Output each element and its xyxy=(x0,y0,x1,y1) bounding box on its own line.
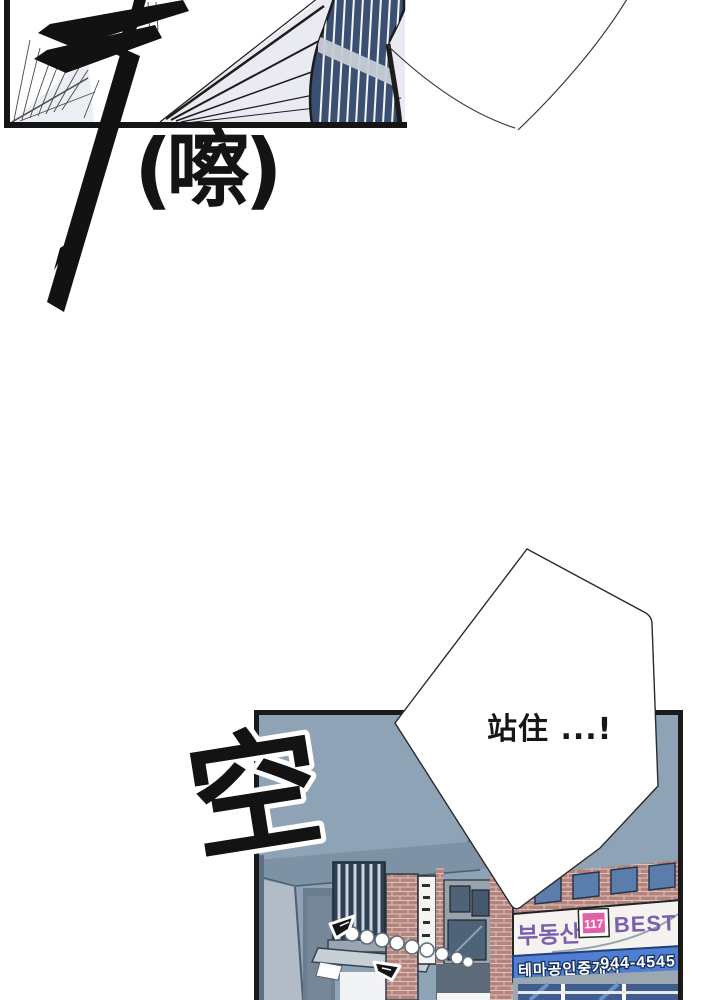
sign-realty-text: 부동산 xyxy=(517,921,581,949)
top-panel xyxy=(4,0,630,312)
agency-phone-text: 944-4545 xyxy=(600,953,676,973)
speech-bubble-text: 站住 ...! xyxy=(487,704,612,748)
sfx-caption: (嚓) xyxy=(134,124,277,216)
bottom-panel: 부동산 117 BEST 테마공인중개사 944-4545 xyxy=(178,549,683,1000)
comic-page: 부동산 117 BEST 테마공인중개사 944-4545 xyxy=(0,0,720,1000)
sign-badge-number: 117 xyxy=(584,917,604,932)
kong-sfx-text: 空 xyxy=(178,709,332,882)
top-speech-bubble-outline xyxy=(386,0,630,130)
storefront-left xyxy=(340,972,388,1000)
sign-badge-117: 117 xyxy=(578,909,609,938)
mid-windows xyxy=(444,880,492,964)
brick-pillar xyxy=(386,874,418,1000)
sign-best-text: BEST xyxy=(613,910,677,937)
